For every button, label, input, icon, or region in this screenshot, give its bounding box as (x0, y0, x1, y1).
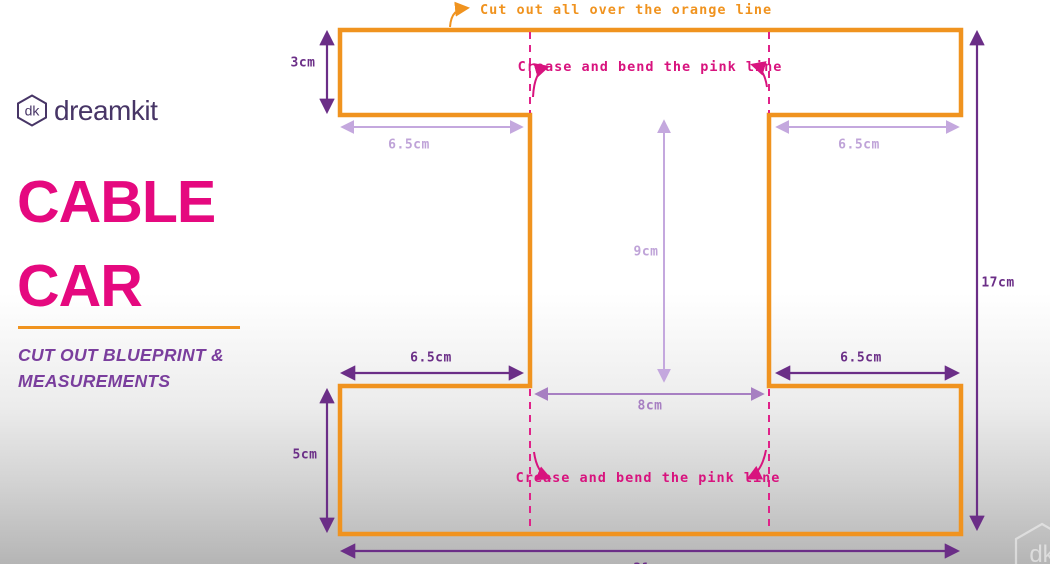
crease-note-bottom: Crease and bend the pink line (516, 470, 781, 486)
fold-lines (530, 32, 769, 532)
cut-note-arrow (450, 8, 467, 27)
dim-label-top-flap-height: 3cm (291, 56, 316, 71)
dim-label-bottom-right-width: 6.5cm (840, 351, 882, 366)
cut-outline (340, 30, 961, 534)
dim-label-bottom-left-width: 6.5cm (410, 351, 452, 366)
dim-label-top-right-width: 6.5cm (838, 138, 880, 153)
dim-label-inner-width: 8cm (638, 399, 663, 414)
dim-label-top-left-width: 6.5cm (388, 138, 430, 153)
dim-label-inner-height: 9cm (634, 245, 659, 260)
blueprint-page: dk dreamkit CABLE CAR CUT OUT BLUEPRINT … (0, 0, 1050, 564)
dim-label-bottom-flap-height: 5cm (293, 448, 318, 463)
cut-note: Cut out all over the orange line (480, 2, 772, 18)
dim-label-total-height: 17cm (981, 276, 1014, 291)
watermark-monogram-text: dk (1029, 541, 1050, 564)
dk-watermark-icon: dk (1010, 521, 1050, 564)
crease-note-top: Crease and bend the pink line (518, 59, 783, 75)
